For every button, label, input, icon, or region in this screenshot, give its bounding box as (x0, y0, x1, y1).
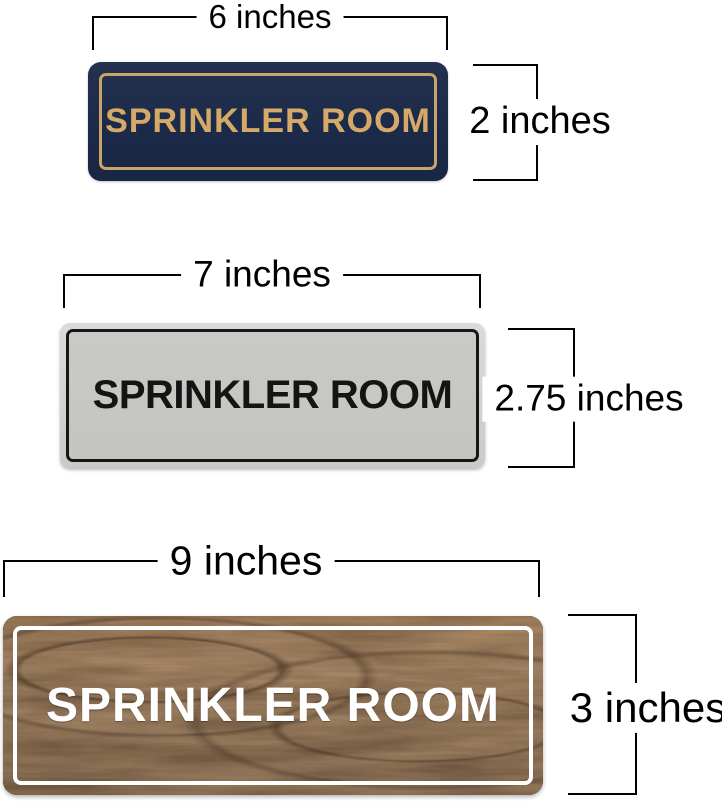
height-dimension-label-3in: 3 inches (558, 683, 722, 733)
height-dimension-label-2in: 2 inches (457, 99, 623, 145)
sign-walnut-white-text: SPRINKLER ROOM (3, 616, 543, 795)
sign-navy-gold-text: SPRINKLER ROOM (88, 62, 448, 181)
sign-navy-gold: SPRINKLER ROOM (88, 62, 448, 181)
width-dimension-label-6in: 6 inches (197, 0, 344, 37)
sign-silver-black: SPRINKLER ROOM (60, 323, 485, 468)
sign-walnut-white: SPRINKLER ROOM (3, 616, 543, 795)
width-dimension-label-9in: 9 inches (158, 536, 335, 585)
sign-silver-black-text: SPRINKLER ROOM (60, 323, 485, 468)
height-dimension-label-2-75in: 2.75 inches (482, 377, 695, 422)
width-dimension-label-7in: 7 inches (181, 253, 343, 298)
sign-size-comparison-image: 6 inches SPRINKLER ROOM 2 inches 7 inche… (0, 0, 722, 805)
